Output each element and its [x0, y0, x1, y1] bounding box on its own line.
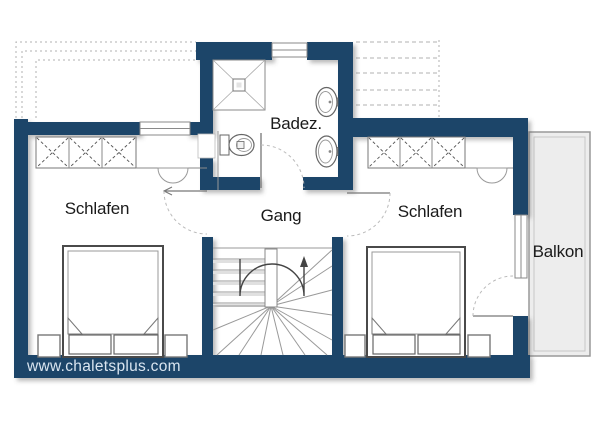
toilet-niche [198, 134, 215, 158]
window-bathroom [272, 43, 307, 57]
nightstand [38, 335, 60, 357]
wall-segment [196, 42, 272, 60]
double-bed-icon [63, 246, 163, 357]
window-right-bedroom [515, 215, 527, 278]
wall-segment [513, 316, 528, 357]
door-left-bedroom [164, 187, 207, 234]
wall-segment [513, 118, 528, 215]
staircase-icon [213, 248, 332, 355]
door-right-bedroom [347, 193, 390, 236]
door-bathroom [261, 133, 304, 188]
washbasin-icon [316, 136, 338, 167]
wardrobe-icon [36, 137, 207, 183]
room-label-balcony: Balkon [533, 242, 584, 262]
wall-segment [202, 237, 213, 355]
double-bed-icon [367, 247, 465, 357]
door-balcony [473, 276, 513, 316]
wall-segment [338, 42, 353, 190]
nightstand [345, 335, 365, 357]
wall-segment [338, 118, 528, 137]
wall-segment [332, 237, 343, 355]
wardrobe-icon [368, 137, 513, 183]
nightstand [165, 335, 187, 357]
room-label-bedroom-right: Schlafen [398, 202, 463, 222]
wall-segment [200, 158, 213, 190]
floor-plan: Badez. Gang Schlafen Schlafen Balkon www… [0, 0, 600, 425]
washbasin-icon [316, 88, 338, 117]
window-left-bedroom [140, 122, 190, 135]
wall-segment [303, 177, 353, 190]
room-label-bathroom: Badez. [270, 114, 322, 134]
nightstand [468, 335, 490, 357]
wall-segment [213, 177, 260, 190]
room-label-hallway: Gang [261, 206, 302, 226]
shower-icon [213, 60, 265, 110]
room-label-bedroom-left: Schlafen [65, 199, 130, 219]
wall-segment [14, 119, 28, 378]
wall-segment [14, 122, 140, 135]
watermark-url: www.chaletsplus.com [27, 358, 181, 376]
